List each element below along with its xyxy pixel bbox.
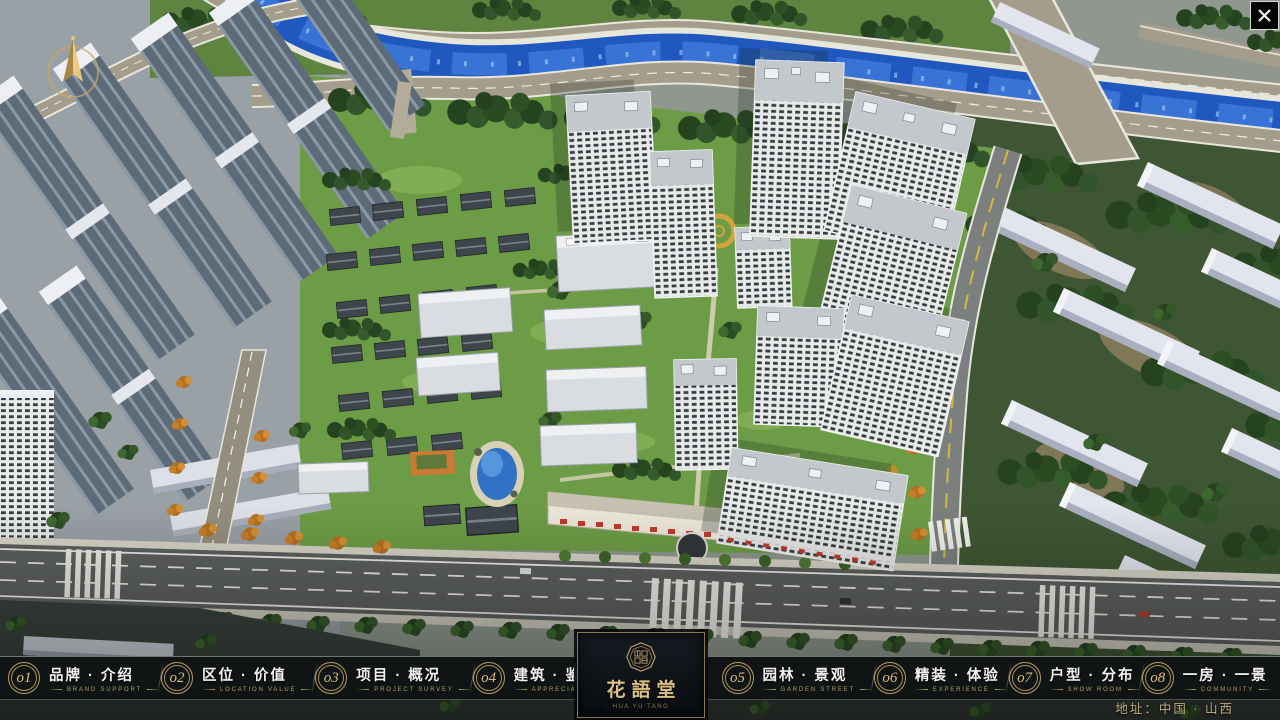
nav-label-en: BRAND SUPPORT [49,687,160,693]
nav-number-badge: o6 [874,662,906,694]
app-window: o1 品牌 · 介绍 BRAND SUPPORT o2 区位 · 价值 LOCA… [0,0,1280,720]
nav-item-floorplan[interactable]: o7 户型 · 分布 SHOW ROOM [1009,662,1141,694]
seal-emblem-icon [625,641,657,673]
nav-number-badge: o7 [1009,662,1041,694]
nav-number-badge: o1 [8,662,40,694]
nav-label-zh: 精装 · 体验 [915,664,1000,685]
nav-label-en: GARDEN STREET [763,687,873,693]
nav-label-zh: 户型 · 分布 [1050,664,1135,685]
close-icon [1257,8,1272,23]
project-logo-title: 花語堂 [600,675,681,702]
masterplan-render [0,0,1280,720]
nav-label-zh: 区位 · 价值 [202,664,287,685]
nav-item-garden[interactable]: o5 园林 · 景观 GARDEN STREET [722,662,873,694]
nav-number-badge: o4 [473,662,505,694]
nav-label-en: LOCATION VALUE [202,687,314,693]
nav-item-project[interactable]: o3 项目 · 概况 PROJECT SURVEY [315,662,471,694]
nav-item-location[interactable]: o2 区位 · 价值 LOCATION VALUE [161,662,314,694]
nav-item-views[interactable]: o8 一房 · 一景 COMMUNITY [1142,662,1272,694]
nav-label-en: EXPERIENCE [915,687,1008,693]
nav-label-en: PROJECT SURVEY [356,687,471,693]
nav-label-zh: 一房 · 一景 [1183,664,1268,685]
nav-label-zh: 园林 · 景观 [763,664,848,685]
nav-number-badge: o2 [161,662,193,694]
nav-item-interior[interactable]: o6 精装 · 体验 EXPERIENCE [874,662,1008,694]
project-logo-caption: · HUA YU TANG · [606,704,676,710]
project-address: 地址：中国 · 山西 [1115,698,1234,717]
nav-left-group: o1 品牌 · 介绍 BRAND SUPPORT o2 区位 · 价值 LOCA… [0,657,623,699]
nav-number-badge: o8 [1142,662,1174,694]
nav-item-brand[interactable]: o1 品牌 · 介绍 BRAND SUPPORT [8,662,160,694]
project-logo-panel[interactable]: 花語堂 · HUA YU TANG · [577,632,705,718]
nav-label-zh: 项目 · 概况 [356,664,441,685]
nav-number-badge: o5 [722,662,754,694]
nav-label-zh: 品牌 · 介绍 [49,664,134,685]
nav-label-en: SHOW ROOM [1050,687,1141,693]
nav-number-badge: o3 [315,662,347,694]
close-button[interactable] [1250,1,1279,30]
nav-label-en: COMMUNITY [1183,687,1272,693]
compass-icon [44,34,102,102]
nav-right-group: o5 园林 · 景观 GARDEN STREET o6 精装 · 体验 EXPE… [714,657,1280,699]
